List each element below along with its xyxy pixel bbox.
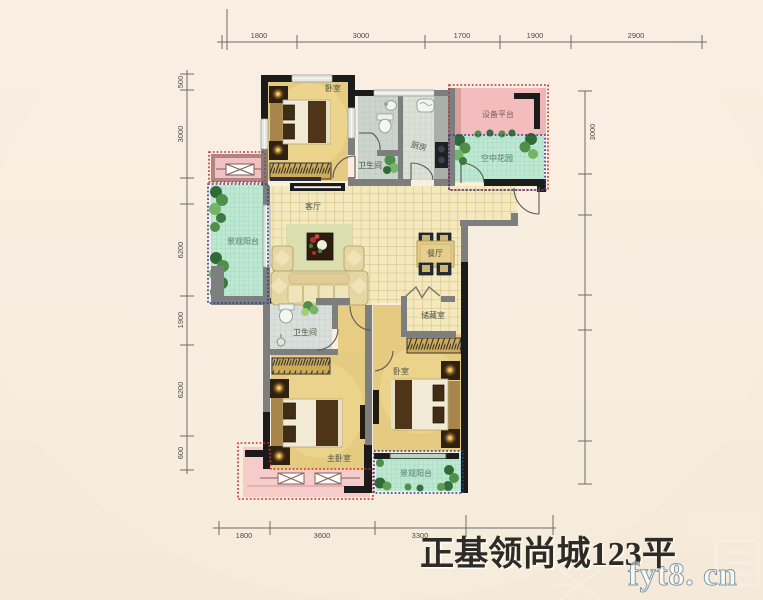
svg-text:主卧室: 主卧室 [327, 453, 351, 463]
svg-text:设备平台: 设备平台 [482, 109, 514, 119]
svg-text:景观阳台: 景观阳台 [227, 236, 259, 246]
svg-text:1800: 1800 [251, 31, 268, 40]
svg-text:fyt8. cn: fyt8. cn [628, 557, 737, 593]
svg-text:景观阳台: 景观阳台 [400, 468, 432, 478]
svg-text:3000: 3000 [176, 126, 185, 143]
svg-text:空中花园: 空中花园 [481, 153, 513, 163]
svg-text:卫生间: 卫生间 [293, 327, 317, 337]
svg-text:客厅: 客厅 [305, 201, 321, 211]
svg-text:1900: 1900 [176, 312, 185, 329]
svg-text:1800: 1800 [236, 531, 253, 540]
svg-text:卧室: 卧室 [325, 83, 341, 93]
svg-text:卧室: 卧室 [393, 366, 409, 376]
svg-text:6200: 6200 [176, 242, 185, 259]
svg-text:3600: 3600 [314, 531, 331, 540]
svg-text:1700: 1700 [454, 31, 471, 40]
svg-text:600: 600 [176, 447, 185, 460]
svg-text:2900: 2900 [628, 31, 645, 40]
svg-text:6200: 6200 [176, 382, 185, 399]
svg-text:500: 500 [176, 76, 185, 89]
svg-text:餐厅: 餐厅 [427, 249, 443, 258]
svg-text:3000: 3000 [353, 31, 370, 40]
svg-text:卫生间: 卫生间 [358, 160, 382, 170]
svg-text:储藏室: 储藏室 [421, 310, 445, 320]
svg-text:3000: 3000 [588, 124, 597, 141]
svg-text:1900: 1900 [527, 31, 544, 40]
